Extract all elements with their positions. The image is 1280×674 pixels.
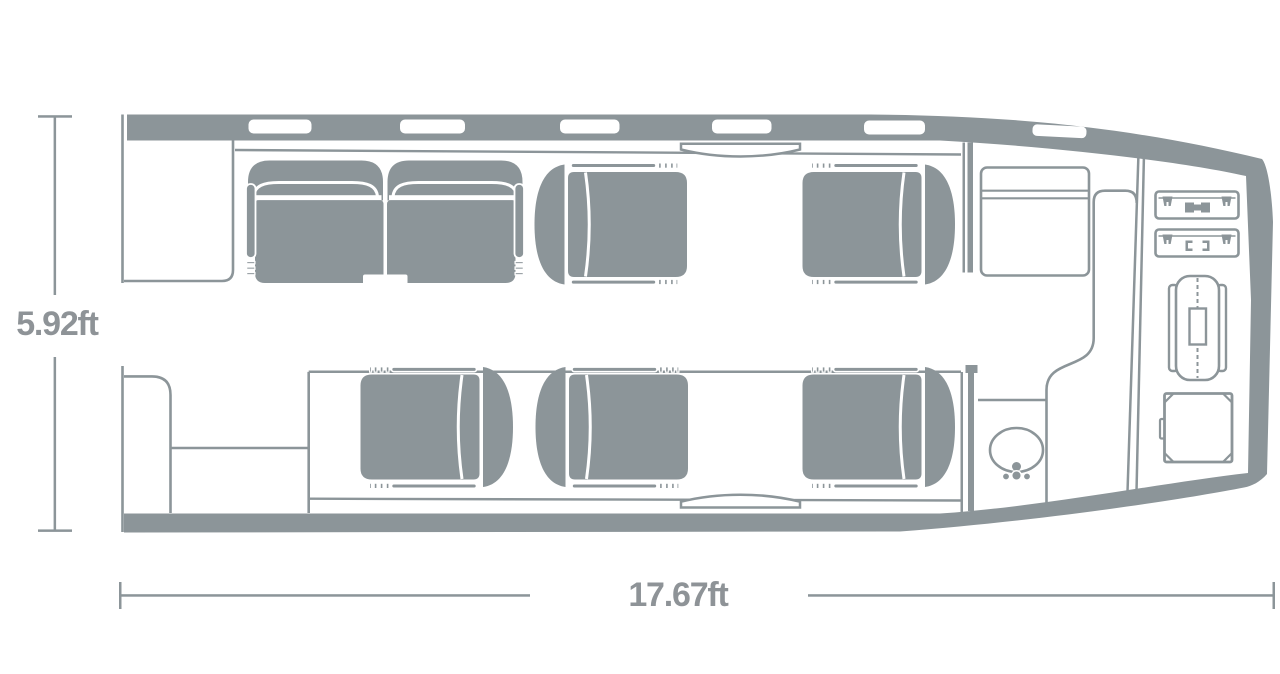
svg-text:5.92ft: 5.92ft <box>16 305 98 343</box>
svg-text:17.67ft: 17.67ft <box>628 576 728 614</box>
